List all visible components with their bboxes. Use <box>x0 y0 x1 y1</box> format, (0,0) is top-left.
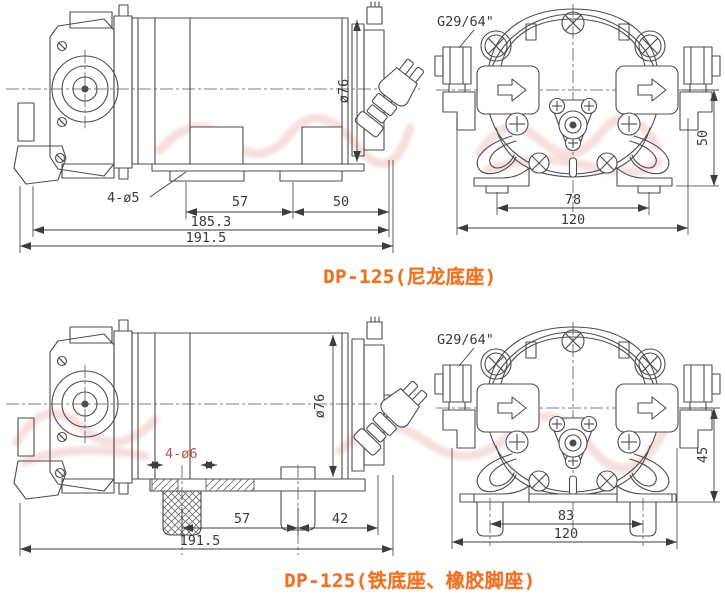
motor-body <box>132 2 392 164</box>
screw-icon <box>58 433 67 442</box>
eccentric-plate <box>550 99 597 151</box>
dim-overall-width: 120 <box>561 212 585 228</box>
dim-foot-pitch: 78 <box>565 192 581 208</box>
screw-icon <box>58 357 67 366</box>
drawing-sheet: ø76 4-ø5 57 50 185.3 191.5 <box>0 0 725 600</box>
dim-foot-pitch: 57 <box>234 511 250 527</box>
top-side-view-drawing: ø76 4-ø5 57 50 185.3 191.5 <box>0 0 430 258</box>
dim-right-offset: 42 <box>332 511 348 527</box>
dim-diameter: ø76 <box>336 79 352 103</box>
dim-holes: 4-ø5 <box>107 190 140 206</box>
pump-head <box>14 5 132 184</box>
screw-icon <box>56 469 65 478</box>
dim-center-height: 45 <box>695 447 711 463</box>
caption-top: DP-125(尼龙底座) <box>240 262 580 289</box>
fitting-thread-label: G29/64" <box>437 332 494 348</box>
bottom-side-view-drawing: ø76 4-ø6 57 42 191.5 <box>0 315 430 565</box>
dim-overall-length: 191.5 <box>186 230 227 246</box>
dim-center-height: 50 <box>695 130 711 146</box>
screw-icon <box>58 42 67 51</box>
dim-overall-length: 191.5 <box>180 533 221 549</box>
pump-head <box>14 320 132 499</box>
dim-foot-pitch: 57 <box>232 194 248 210</box>
mounting-feet-nylon <box>152 127 364 181</box>
dim-holes: 4-ø6 <box>165 446 198 462</box>
power-connector <box>351 376 430 459</box>
dim-base-length: 185.3 <box>191 214 232 230</box>
dim-foot-pitch: 83 <box>558 508 574 524</box>
dim-right-offset: 50 <box>333 194 349 210</box>
fitting-thread-label: G29/64" <box>437 14 494 30</box>
eccentric-plate <box>550 417 597 469</box>
power-connector <box>352 54 429 140</box>
top-front-view-drawing: G29/64" 78 120 50 <box>430 0 725 258</box>
caption-bottom: DP-125(铁底座、橡胶脚座) <box>220 566 600 593</box>
screw-icon <box>58 118 67 127</box>
dim-overall-width: 120 <box>554 526 578 542</box>
dim-diameter: ø76 <box>312 394 328 418</box>
bottom-front-view-drawing: G29/64" 83 120 45 <box>430 318 725 563</box>
screw-icon <box>56 154 65 163</box>
